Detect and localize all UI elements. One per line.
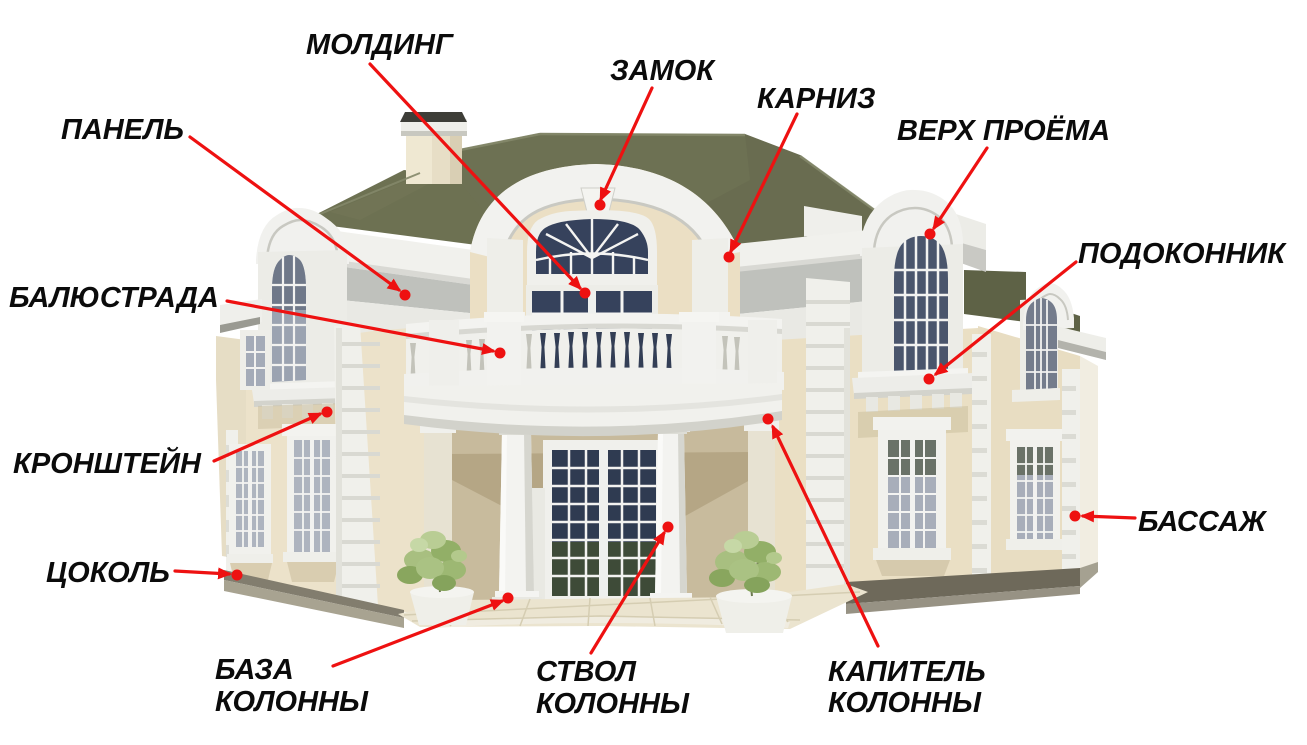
- svg-text:ПОДОКОННИК: ПОДОКОННИК: [1078, 238, 1287, 270]
- svg-text:КАПИТЕЛЬ: КАПИТЕЛЬ: [828, 656, 986, 688]
- svg-text:ЦОКОЛЬ: ЦОКОЛЬ: [46, 557, 170, 589]
- svg-text:БАССАЖ: БАССАЖ: [1138, 506, 1268, 538]
- svg-text:КРОНШТЕЙН: КРОНШТЕЙН: [13, 445, 202, 480]
- svg-text:КОЛОННЫ: КОЛОННЫ: [536, 688, 690, 720]
- svg-text:МОЛДИНГ: МОЛДИНГ: [306, 29, 454, 61]
- svg-text:ПАНЕЛЬ: ПАНЕЛЬ: [61, 114, 184, 146]
- svg-text:ВЕРХ ПРОЁМА: ВЕРХ ПРОЁМА: [897, 114, 1110, 147]
- svg-text:КАРНИЗ: КАРНИЗ: [757, 83, 876, 115]
- svg-text:СТВОЛ: СТВОЛ: [536, 656, 637, 688]
- svg-text:БАЗА: БАЗА: [215, 654, 294, 686]
- svg-text:ЗАМОК: ЗАМОК: [610, 55, 716, 87]
- svg-text:БАЛЮСТРАДА: БАЛЮСТРАДА: [9, 282, 219, 314]
- svg-text:КОЛОННЫ: КОЛОННЫ: [215, 686, 369, 718]
- svg-text:КОЛОННЫ: КОЛОННЫ: [828, 687, 982, 719]
